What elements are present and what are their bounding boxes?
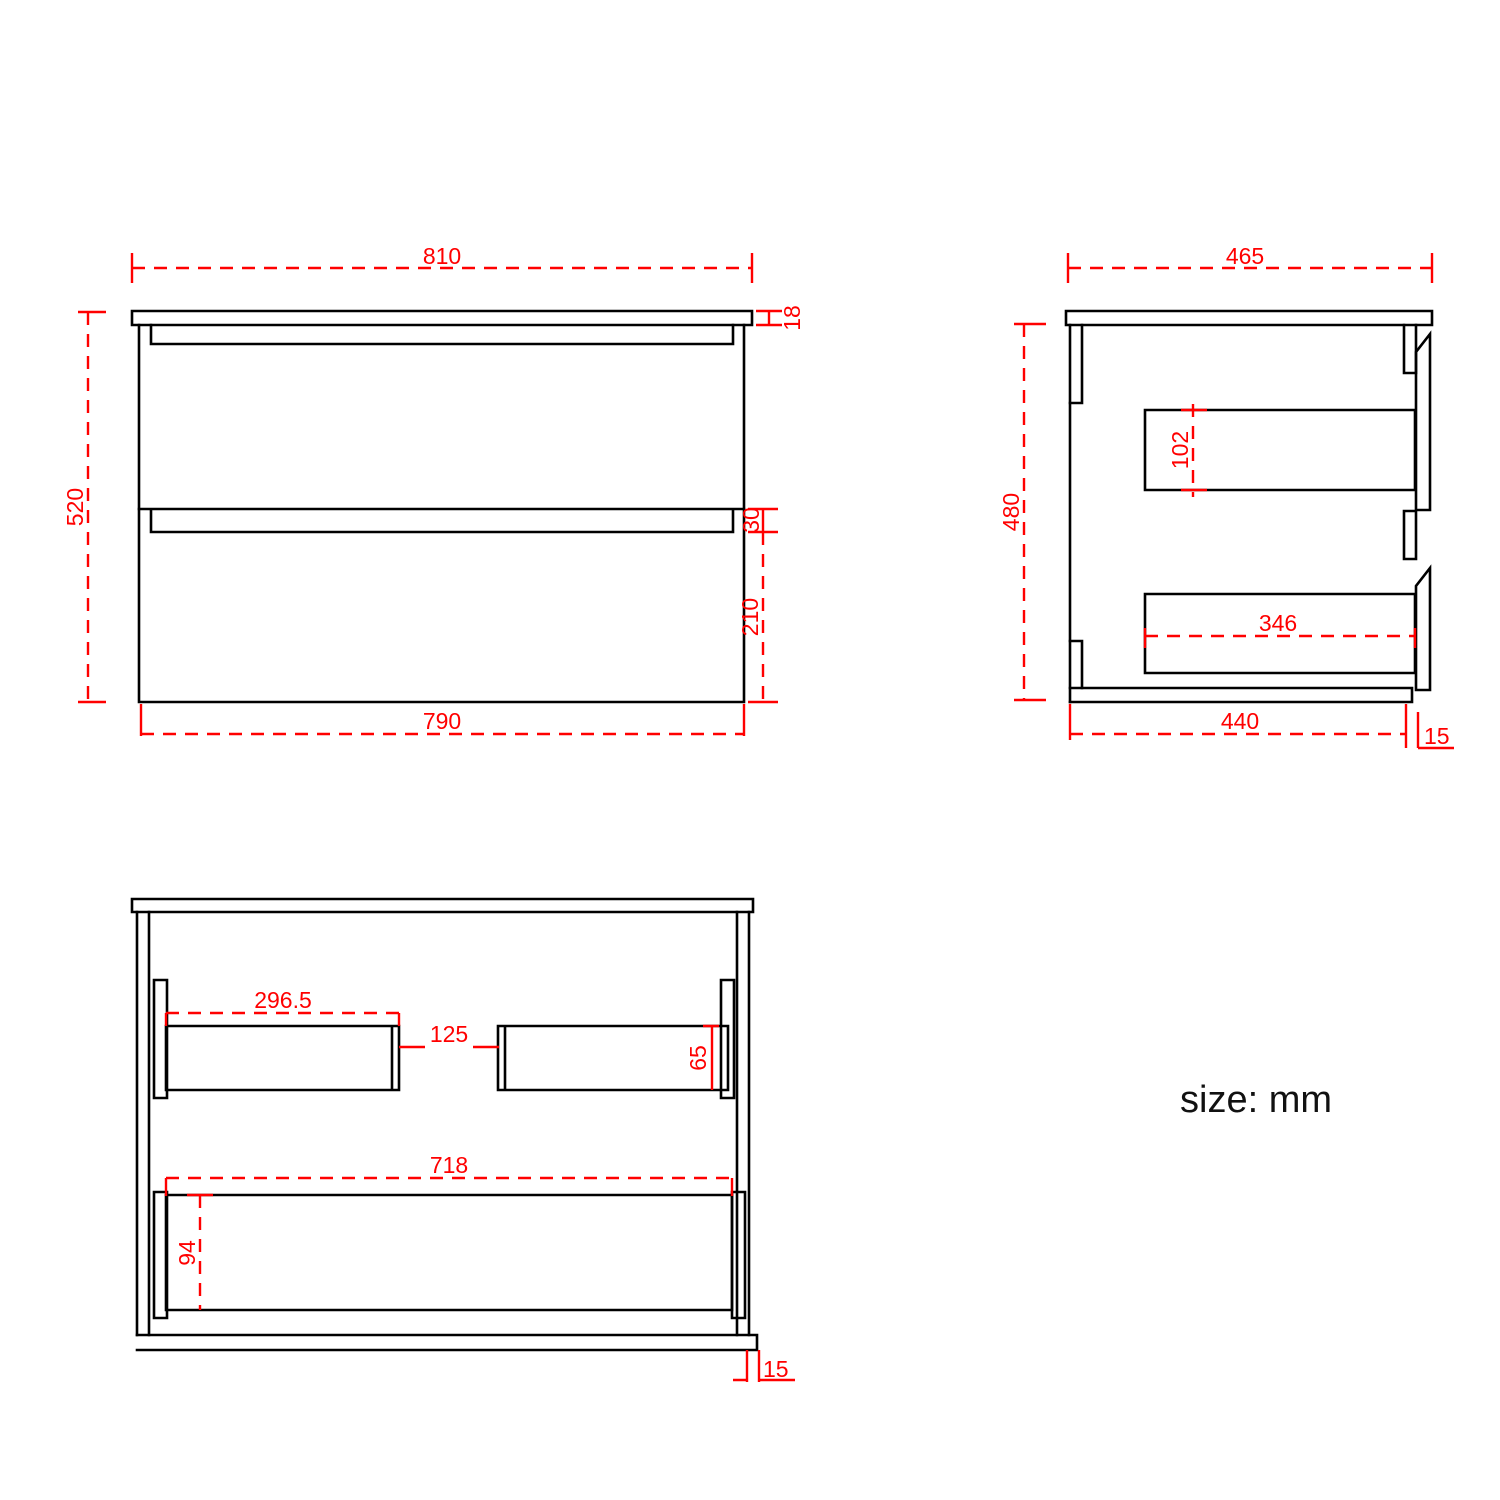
plan-dim-left-drawer-width: 296.5 (166, 987, 399, 1026)
front-cabinet-body (139, 325, 744, 702)
plan-center-gap-label: 125 (430, 1021, 468, 1047)
front-dim-width-top: 810 (132, 243, 752, 283)
plan-overhang-label: 15 (763, 1356, 789, 1382)
side-dim-overhang: 15 (1418, 712, 1454, 749)
plan-drawer-side-depth-label: 94 (174, 1240, 200, 1266)
side-dim-drawer-inner-height: 102 (1167, 404, 1207, 497)
drawing-canvas: 810 520 18 30 210 790 (0, 0, 1500, 1500)
plan-upper-left-drawer-side (166, 1026, 399, 1090)
front-countertop (132, 311, 752, 325)
side-view: 465 480 102 346 440 15 (998, 243, 1454, 749)
front-drawer-front-height-label: 210 (737, 598, 763, 636)
side-drawer-inner-depth-label: 346 (1259, 610, 1297, 636)
plan-dim-overhang: 15 (733, 1350, 795, 1382)
side-bottom-mount-cleat (1070, 641, 1082, 688)
side-depth-body-label: 440 (1221, 708, 1259, 734)
plan-drawer-width-label: 718 (430, 1152, 468, 1178)
front-top-handle-groove (151, 325, 733, 344)
side-depth-top-label: 465 (1226, 243, 1264, 269)
front-dim-height-total: 520 (62, 312, 106, 702)
side-dim-depth-body: 440 (1070, 704, 1406, 748)
plan-left-side-panel (137, 912, 149, 1335)
side-bottom-panel (1070, 688, 1412, 702)
front-middle-handle-groove (139, 509, 744, 532)
side-drawer-inner-height-label: 102 (1167, 431, 1193, 469)
front-dim-countertop-thickness: 18 (756, 305, 805, 331)
plan-countertop-edge (132, 899, 753, 912)
plan-dim-drawer-side-height: 65 (685, 1026, 719, 1090)
plan-back-panel (137, 1335, 757, 1350)
plan-lower-drawer-side (166, 1195, 732, 1310)
side-overhang-label: 15 (1424, 723, 1450, 749)
front-drawer-gap-label: 30 (738, 507, 764, 533)
side-lower-drawer-front (1416, 568, 1430, 690)
front-width-top-label: 810 (423, 243, 461, 269)
side-top-mount-cleat (1070, 325, 1082, 403)
plan-dim-center-gap: 125 (399, 1021, 499, 1047)
plan-dim-drawer-width: 718 (166, 1152, 732, 1196)
side-dim-depth-top: 465 (1068, 243, 1432, 283)
side-dim-height-body: 480 (998, 324, 1046, 700)
side-dim-drawer-inner-depth: 346 (1145, 610, 1415, 648)
plan-view: 296.5 125 65 718 94 15 (132, 899, 795, 1382)
front-width-body-label: 790 (423, 708, 461, 734)
front-height-total-label: 520 (62, 488, 88, 526)
plan-dim-drawer-side-depth: 94 (174, 1195, 213, 1310)
plan-right-side-panel (737, 912, 749, 1335)
front-dim-width-body: 790 (141, 704, 744, 736)
side-height-body-label: 480 (998, 493, 1024, 531)
units-note: size: mm (1180, 1079, 1332, 1121)
plan-drawer-side-height-label: 65 (685, 1045, 711, 1071)
front-view: 810 520 18 30 210 790 (62, 243, 805, 736)
side-top-rail (1404, 325, 1416, 373)
front-countertop-thickness-label: 18 (779, 305, 805, 331)
side-countertop (1066, 311, 1432, 325)
plan-left-drawer-width-label: 296.5 (254, 987, 312, 1013)
technical-drawing: 810 520 18 30 210 790 (0, 0, 1500, 1500)
front-dim-drawer-gap: 30 (738, 507, 778, 533)
side-middle-rail (1404, 511, 1416, 559)
plan-lower-right-slide-rail (732, 1192, 745, 1318)
side-upper-drawer-front (1416, 334, 1430, 510)
